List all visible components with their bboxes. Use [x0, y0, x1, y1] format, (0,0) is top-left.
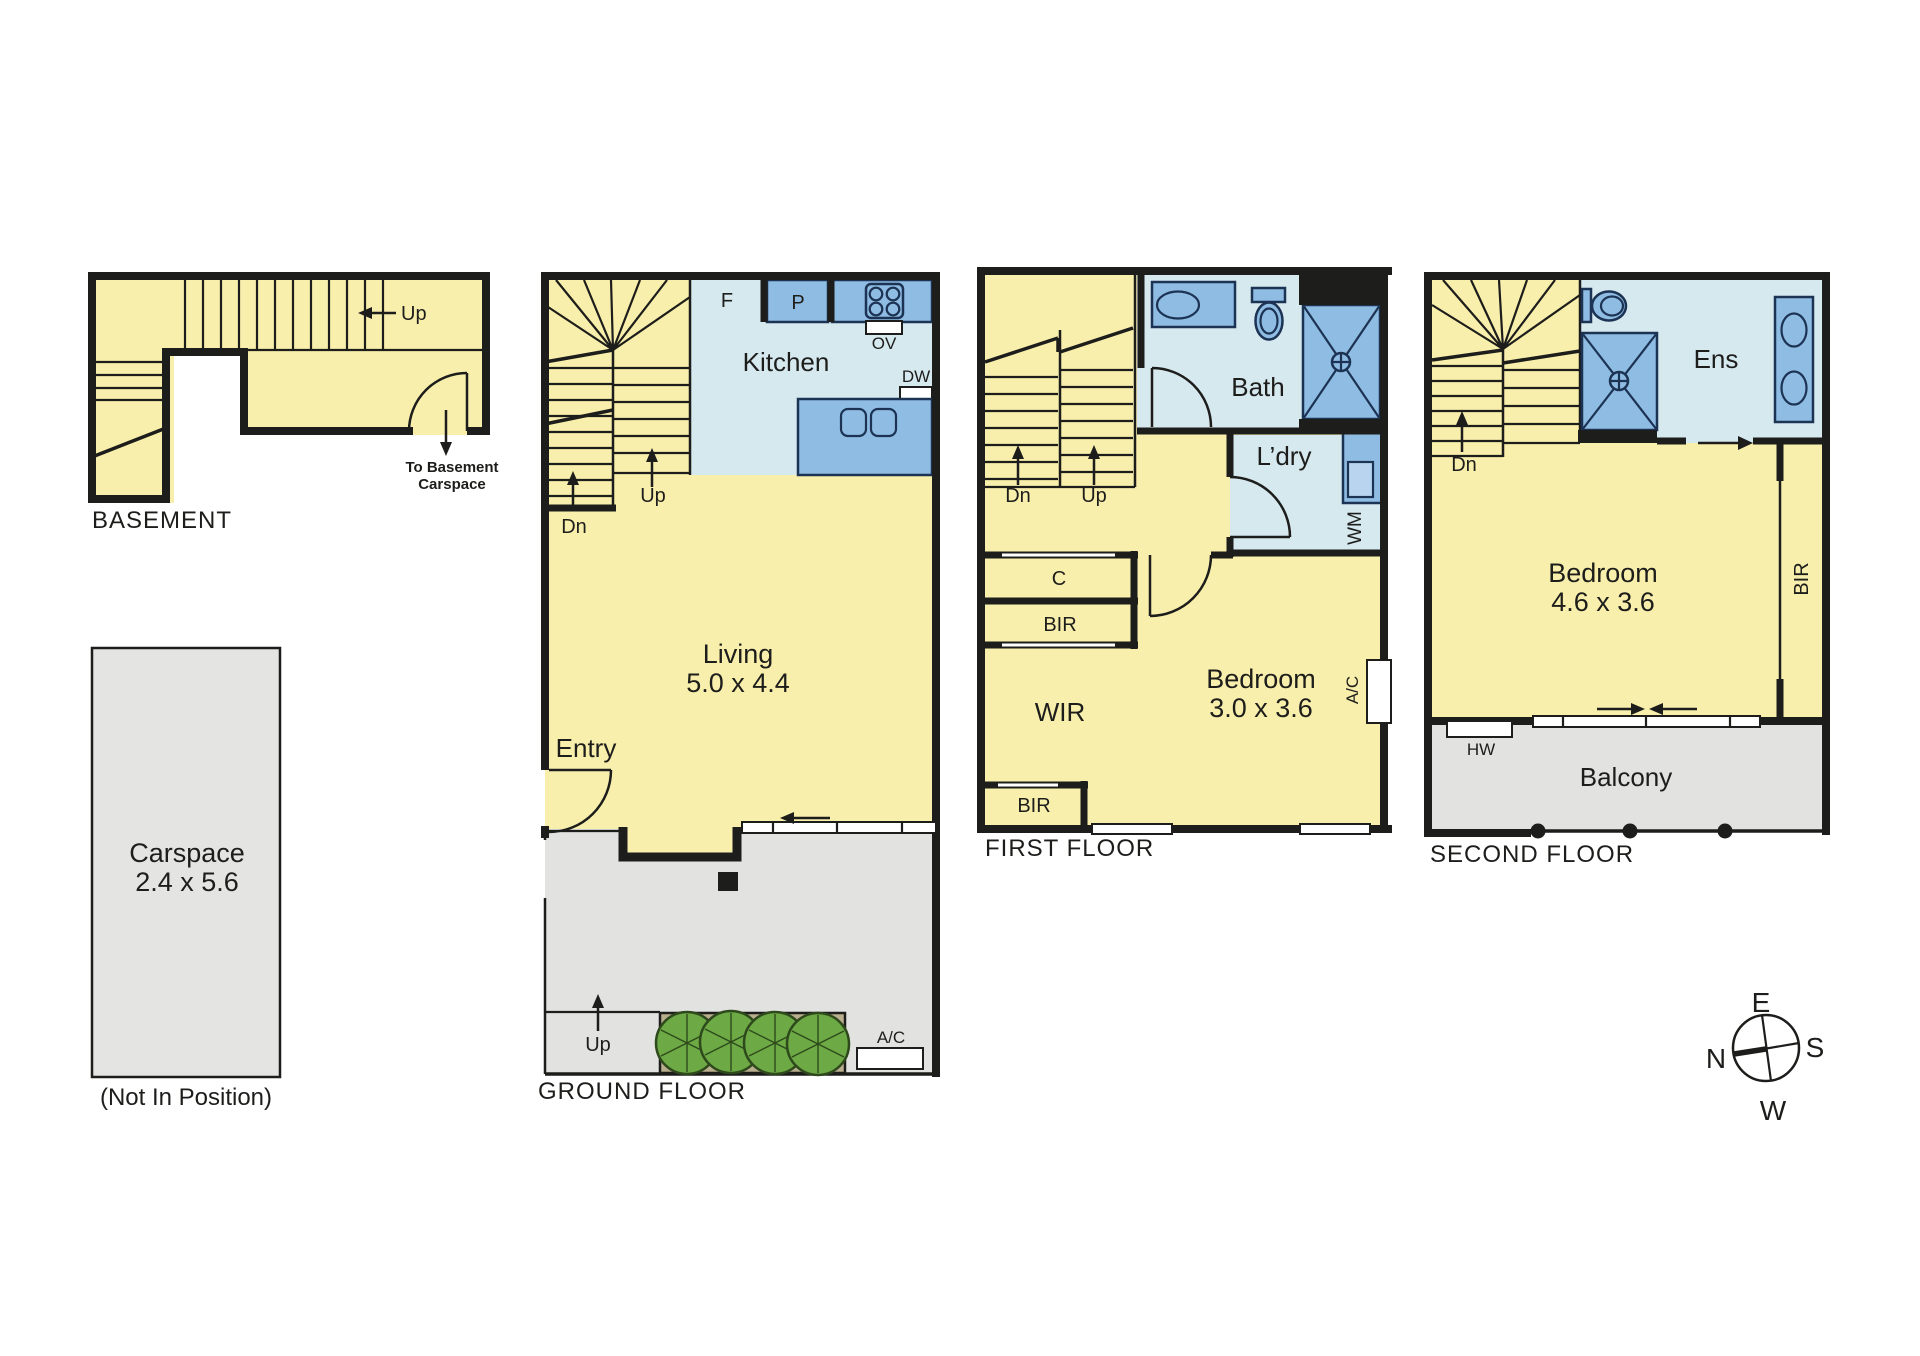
bedroom-label: Bedroom [1548, 558, 1658, 588]
bedroom-dims: 3.0 x 3.6 [1209, 693, 1313, 723]
duct-block [1299, 267, 1388, 305]
kitchen-label: Kitchen [743, 347, 830, 377]
hw-label: HW [1467, 740, 1495, 759]
north-needle [1734, 1049, 1766, 1054]
wm-label: WM [1345, 511, 1366, 545]
post [718, 872, 738, 891]
window-band [1300, 824, 1370, 834]
entry-label: Entry [556, 733, 617, 763]
dishwasher-label: DW [902, 367, 930, 386]
window-band [1092, 824, 1172, 834]
balcony-post [1718, 824, 1733, 839]
balcony-post [1623, 824, 1638, 839]
carspace-dims: 2.4 x 5.6 [135, 867, 239, 897]
bir-bottom-label: BIR [1017, 795, 1050, 817]
carspace-note: (Not In Position) [100, 1084, 272, 1111]
bir-label: BIR [1791, 562, 1813, 595]
shower-hob [1299, 419, 1388, 431]
air-conditioner-unit [857, 1048, 923, 1069]
bedroom-label: Bedroom [1206, 664, 1316, 694]
compass-south-label: S [1806, 1032, 1825, 1063]
cupboard-label: C [1052, 568, 1066, 590]
basement-plan: Up To Basement Carspace BASEMENT [88, 272, 499, 534]
ensuite-vanity-icon [1775, 297, 1813, 422]
toilet-cistern-icon [1582, 289, 1591, 322]
dishwasher-box [900, 387, 932, 399]
pantry-label: P [791, 292, 804, 314]
floor-plan-svg: Up To Basement Carspace BASEMENT [0, 0, 1920, 1356]
compass-west-label: W [1760, 1095, 1787, 1126]
stair-dn-label: Dn [561, 516, 587, 538]
basement-room [240, 348, 490, 435]
basement-title: BASEMENT [92, 507, 232, 534]
basement-up-label: Up [401, 303, 427, 325]
air-conditioner-unit [1367, 660, 1391, 723]
window-band [742, 822, 936, 833]
fridge-label: F [721, 290, 733, 312]
stair-up-label: Up [640, 485, 666, 507]
ground-floor-title: GROUND FLOOR [538, 1078, 746, 1105]
bath-label: Bath [1231, 372, 1285, 402]
balcony-label: Balcony [1580, 762, 1673, 792]
laundry-label: L’dry [1257, 441, 1312, 471]
shower-hob [1578, 430, 1657, 443]
stair-up-label: Up [1081, 485, 1107, 507]
carspace-label: Carspace [129, 838, 245, 868]
island-bench [798, 399, 932, 475]
ac-label: A/C [877, 1028, 905, 1047]
second-floor-title: SECOND FLOOR [1430, 841, 1634, 868]
ensuite-label: Ens [1694, 344, 1739, 374]
compass-rose: E S W N [1706, 987, 1824, 1126]
floorplan-page: Up To Basement Carspace BASEMENT [0, 0, 1920, 1356]
exit-arrowhead-icon [440, 442, 452, 456]
oven-label: OV [872, 334, 897, 353]
first-floor-plan: Bath L’dry WM C BIR WIR Bedroom 3.0 x 3.… [977, 267, 1392, 862]
vanity-icon [1152, 282, 1235, 327]
stair-dn-label: Dn [1451, 454, 1477, 476]
toilet-cistern-icon [1252, 288, 1285, 302]
ground-floor-plan: F P Kitchen OV DW Dn Up Living 5.0 x 4.4… [538, 272, 940, 1105]
hot-water-unit [1447, 721, 1512, 737]
compass-north-label: N [1706, 1043, 1726, 1074]
oven-box [866, 321, 902, 334]
tree-icons [656, 1011, 849, 1075]
living-label: Living [703, 639, 774, 669]
to-basement-label-1: To Basement [405, 459, 498, 476]
first-floor-title: FIRST FLOOR [985, 835, 1154, 862]
wir-label: WIR [1035, 697, 1086, 727]
washing-machine-icon [1348, 462, 1373, 497]
second-floor-plan: Ens Dn Bedroom 4.6 x 3.6 BIR HW Balcony … [1424, 272, 1830, 868]
bedroom-dims: 4.6 x 3.6 [1551, 587, 1655, 617]
living-dims: 5.0 x 4.4 [686, 668, 790, 698]
balcony-post [1531, 824, 1546, 839]
courtyard-up-label: Up [585, 1034, 611, 1056]
to-basement-label-2: Carspace [418, 476, 486, 493]
stair-dn-label: Dn [1005, 485, 1031, 507]
compass-east-label: E [1752, 987, 1771, 1018]
ac-label: A/C [1343, 676, 1362, 704]
bir-top-label: BIR [1043, 614, 1076, 636]
carspace-plan: Carspace 2.4 x 5.6 (Not In Position) [92, 648, 280, 1111]
